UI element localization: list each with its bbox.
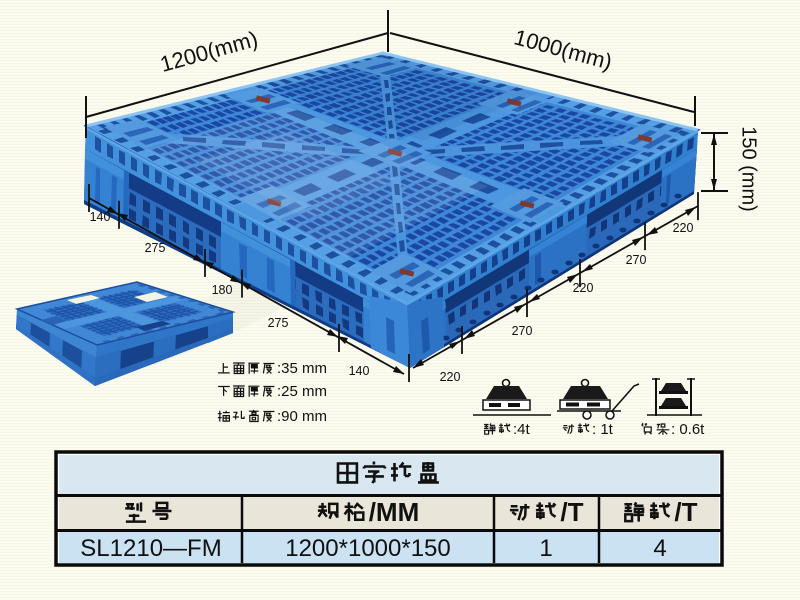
svg-text:275: 275 <box>268 316 289 330</box>
svg-text:: 0.6t: : 0.6t <box>671 421 705 438</box>
svg-text:: 1t: : 1t <box>592 421 614 438</box>
svg-text:150 (mm): 150 (mm) <box>738 126 760 212</box>
svg-text:4: 4 <box>653 535 666 562</box>
svg-text:/T: /T <box>674 497 697 527</box>
svg-text:220: 220 <box>673 221 694 235</box>
svg-text:220: 220 <box>440 370 461 384</box>
svg-text:275: 275 <box>145 241 166 255</box>
svg-text:SL1210—FM: SL1210—FM <box>80 535 221 562</box>
svg-text:270: 270 <box>512 324 533 338</box>
svg-text::25 mm: :25 mm <box>277 383 327 400</box>
svg-text:1200*1000*150: 1200*1000*150 <box>285 535 451 562</box>
svg-text:140: 140 <box>349 364 370 378</box>
svg-text::4t: :4t <box>513 421 531 438</box>
svg-text::35 mm: :35 mm <box>277 360 327 377</box>
svg-text:/MM: /MM <box>369 497 420 527</box>
svg-text:270: 270 <box>626 253 647 267</box>
svg-text:220: 220 <box>573 281 594 295</box>
svg-text:140: 140 <box>90 210 111 224</box>
svg-text::90 mm: :90 mm <box>277 408 327 425</box>
svg-text:1000(mm): 1000(mm) <box>511 24 614 74</box>
svg-text:1200(mm): 1200(mm) <box>157 26 260 77</box>
svg-text:/T: /T <box>560 497 583 527</box>
svg-text:1: 1 <box>539 535 552 562</box>
svg-text:180: 180 <box>212 283 233 297</box>
